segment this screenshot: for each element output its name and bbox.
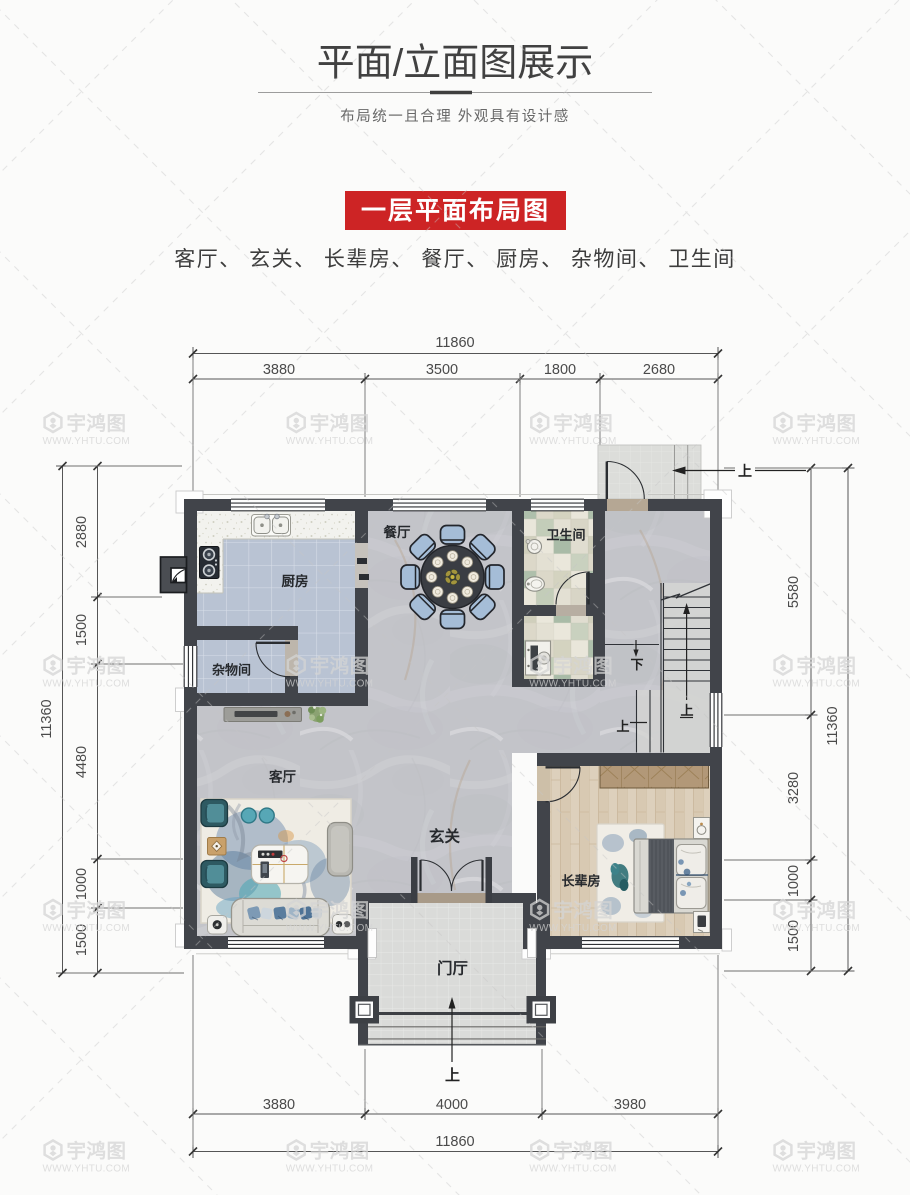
svg-text:下: 下 — [630, 657, 643, 672]
svg-text:2680: 2680 — [643, 362, 675, 378]
svg-text:11860: 11860 — [435, 335, 474, 351]
svg-text:一层平面布局图: 一层平面布局图 — [361, 196, 550, 225]
svg-text:宇鸿图: 宇鸿图 — [797, 899, 857, 922]
svg-text:宇鸿图: 宇鸿图 — [310, 1140, 370, 1163]
svg-text:上: 上 — [616, 719, 629, 734]
svg-text:宇鸿图: 宇鸿图 — [310, 899, 370, 922]
svg-text:宇鸿图: 宇鸿图 — [797, 1140, 857, 1163]
svg-text:上: 上 — [680, 703, 693, 718]
svg-text:宇鸿图: 宇鸿图 — [553, 899, 613, 922]
svg-text:WWW.YHTU.COM: WWW.YHTU.COM — [773, 1164, 860, 1175]
svg-text:WWW.YHTU.COM: WWW.YHTU.COM — [529, 1164, 616, 1175]
svg-text:WWW.YHTU.COM: WWW.YHTU.COM — [529, 436, 616, 447]
svg-text:客厅、 玄关、 长辈房、 餐厅、 厨房、 杂物间、 卫生间: 客厅、 玄关、 长辈房、 餐厅、 厨房、 杂物间、 卫生间 — [174, 248, 736, 271]
svg-text:宇鸿图: 宇鸿图 — [310, 655, 370, 678]
svg-text:3980: 3980 — [614, 1097, 646, 1113]
svg-text:长辈房: 长辈房 — [561, 874, 600, 889]
svg-text:WWW.YHTU.COM: WWW.YHTU.COM — [286, 679, 373, 690]
svg-text:WWW.YHTU.COM: WWW.YHTU.COM — [43, 923, 130, 934]
svg-text:宇鸿图: 宇鸿图 — [797, 655, 857, 678]
svg-text:1800: 1800 — [544, 362, 576, 378]
svg-text:WWW.YHTU.COM: WWW.YHTU.COM — [286, 436, 373, 447]
svg-text:宇鸿图: 宇鸿图 — [67, 1140, 127, 1163]
svg-text:宇鸿图: 宇鸿图 — [797, 412, 857, 435]
svg-text:上: 上 — [445, 1067, 460, 1084]
svg-text:上: 上 — [738, 463, 752, 479]
svg-text:WWW.YHTU.COM: WWW.YHTU.COM — [773, 436, 860, 447]
svg-text:宇鸿图: 宇鸿图 — [553, 655, 613, 678]
svg-text:WWW.YHTU.COM: WWW.YHTU.COM — [773, 679, 860, 690]
svg-text:3280: 3280 — [786, 772, 802, 804]
svg-text:布局统一且合理 外观具有设计感: 布局统一且合理 外观具有设计感 — [340, 108, 570, 125]
svg-text:3880: 3880 — [263, 1097, 295, 1113]
svg-text:1500: 1500 — [74, 614, 90, 646]
svg-text:WWW.YHTU.COM: WWW.YHTU.COM — [43, 1164, 130, 1175]
svg-text:5580: 5580 — [786, 576, 802, 608]
svg-text:宇鸿图: 宇鸿图 — [310, 412, 370, 435]
svg-text:11360: 11360 — [39, 699, 55, 738]
svg-text:11360: 11360 — [825, 706, 841, 745]
svg-text:4000: 4000 — [436, 1097, 468, 1113]
svg-text:厨房: 厨房 — [282, 573, 309, 589]
svg-text:宇鸿图: 宇鸿图 — [67, 412, 127, 435]
svg-text:WWW.YHTU.COM: WWW.YHTU.COM — [43, 679, 130, 690]
svg-text:玄关: 玄关 — [429, 827, 461, 846]
svg-text:1000: 1000 — [786, 865, 802, 897]
svg-text:宇鸿图: 宇鸿图 — [553, 412, 613, 435]
svg-text:宇鸿图: 宇鸿图 — [67, 899, 127, 922]
svg-text:门厅: 门厅 — [437, 959, 469, 978]
svg-text:WWW.YHTU.COM: WWW.YHTU.COM — [529, 923, 616, 934]
svg-text:2880: 2880 — [74, 516, 90, 548]
svg-text:4480: 4480 — [74, 746, 90, 778]
svg-text:WWW.YHTU.COM: WWW.YHTU.COM — [286, 1164, 373, 1175]
svg-text:餐厅: 餐厅 — [383, 524, 411, 540]
svg-text:WWW.YHTU.COM: WWW.YHTU.COM — [286, 923, 373, 934]
svg-text:卫生间: 卫生间 — [546, 528, 585, 543]
svg-text:宇鸿图: 宇鸿图 — [553, 1140, 613, 1163]
svg-text:WWW.YHTU.COM: WWW.YHTU.COM — [529, 679, 616, 690]
svg-text:WWW.YHTU.COM: WWW.YHTU.COM — [773, 923, 860, 934]
svg-text:杂物间: 杂物间 — [212, 663, 251, 678]
svg-text:宇鸿图: 宇鸿图 — [67, 655, 127, 678]
svg-text:11860: 11860 — [435, 1134, 474, 1150]
svg-text:WWW.YHTU.COM: WWW.YHTU.COM — [43, 436, 130, 447]
svg-text:1000: 1000 — [74, 868, 90, 900]
svg-text:3880: 3880 — [263, 362, 295, 378]
svg-text:3500: 3500 — [426, 362, 458, 378]
